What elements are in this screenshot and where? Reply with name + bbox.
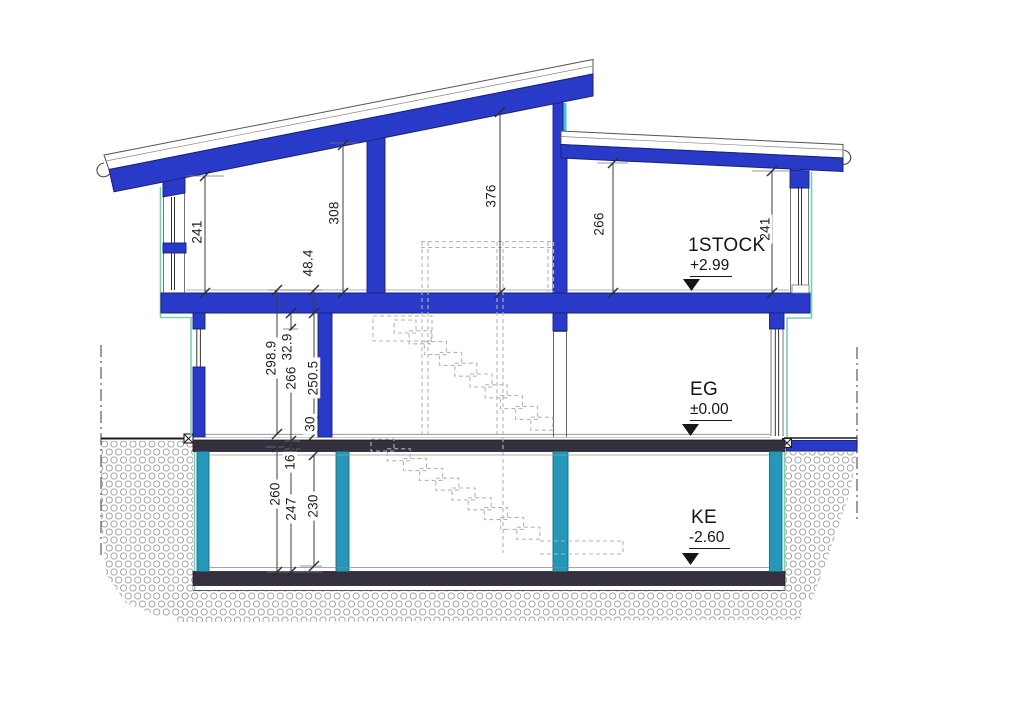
stock-wall-right-head [790, 170, 809, 188]
eg-center-wall-head [553, 313, 567, 331]
level-label-eg: EG [690, 380, 718, 399]
dim-upper-mid-height: 376 [484, 181, 498, 210]
dim-ke-slab: 16 [283, 451, 297, 472]
dim-eg-raw-height: 266 [284, 363, 298, 392]
stock-wall-left-transom [163, 243, 186, 253]
ke-column-left [336, 452, 349, 572]
level-marker-1stock [683, 279, 700, 291]
stock-floor-slab [161, 293, 810, 313]
stock-post-mid [367, 137, 385, 293]
dim-ke-clear-height: 247 [284, 494, 298, 523]
dim-ke-inner-height: 230 [306, 491, 320, 520]
stair-flight-eg [394, 320, 553, 430]
eg-center-door-opening [553, 331, 567, 437]
architectural-section-drawing: 241 308 376 266 241 48.4 32.9 298.9 266 … [0, 0, 1024, 724]
eg-floor-slab [193, 440, 785, 452]
dim-eg-screed: 30 [303, 413, 317, 434]
stairs [371, 242, 623, 555]
eg-wall-left-lintel [193, 313, 205, 329]
stair-flight-ke [371, 439, 540, 539]
eg-glass-door-right [771, 329, 783, 436]
dim-upper-right-height: 266 [592, 209, 606, 238]
level-label-ke: KE [691, 508, 717, 527]
upper-slab [161, 290, 810, 313]
main-roof-sheathing [104, 60, 593, 170]
main-roof-structure [109, 74, 593, 192]
stock-window-right-sill [792, 285, 809, 293]
section-drawing-svg [0, 0, 1024, 724]
level-elevation-eg: ±0.00 [690, 402, 732, 421]
eg-wall-left [193, 367, 205, 437]
dim-upper-left-height: 241 [190, 217, 204, 246]
level-elevation-1stock: +2.99 [690, 258, 732, 277]
dim-eg-clear-height: 250.5 [306, 358, 320, 399]
dim-upper-mid-left-height: 308 [327, 198, 341, 227]
exterior-paving-strip [787, 441, 858, 452]
level-label-1stock: 1STOCK [688, 236, 765, 255]
ke-wall-left [197, 452, 209, 572]
stock-window-right [799, 188, 802, 285]
ke-floor-slab [193, 572, 785, 586]
ground-hatch [101, 441, 857, 622]
level-elevation-ke: -2.60 [689, 530, 730, 549]
dim-ke-raw-height: 260 [268, 479, 282, 508]
ke-wall-right [770, 452, 783, 572]
level-marker-ke [682, 553, 699, 565]
eg-wall-right-lintel [770, 313, 785, 329]
dim-floor-buildup-upper: 48.4 [301, 246, 315, 279]
dim-slab-thickness: 32.9 [280, 330, 294, 363]
eg-window-left [197, 329, 201, 367]
dim-eg-floor-to-floor: 298.9 [264, 338, 278, 379]
